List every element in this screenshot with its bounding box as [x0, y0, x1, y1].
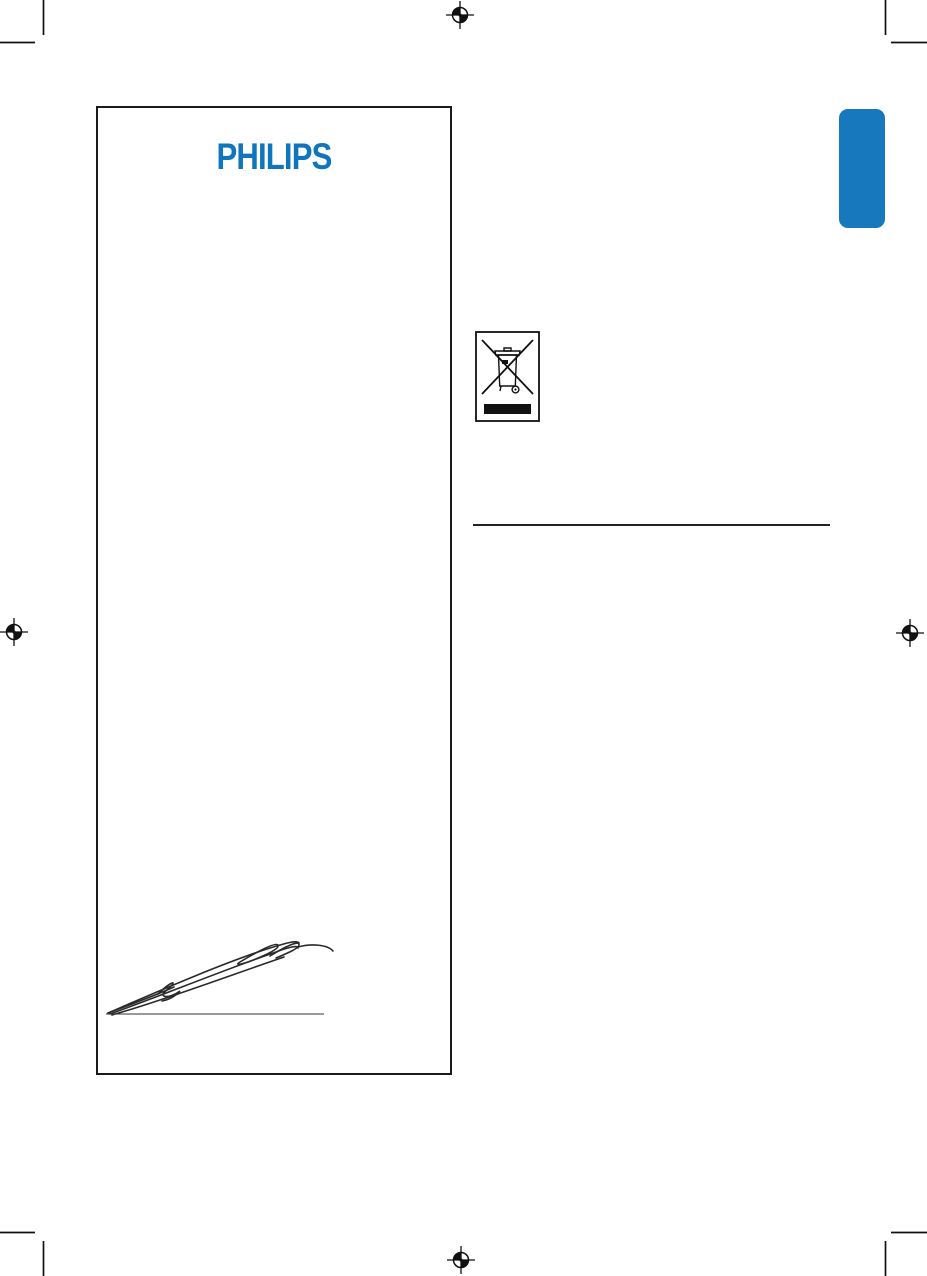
- manual-page: PHILIPS: [0, 0, 927, 1276]
- declaration-box: PHILIPS: [96, 106, 452, 1075]
- section-tab-shape: [839, 109, 885, 228]
- philips-logo: PHILIPS: [126, 138, 422, 175]
- registration-mark-icon: [443, 0, 477, 32]
- weee-recycle-bin-icon: [475, 331, 540, 422]
- registration-mark-icon: [444, 1243, 478, 1276]
- section-divider: [473, 524, 830, 526]
- registration-mark-icon: [0, 615, 31, 649]
- section-tab: [839, 109, 885, 228]
- signature: [102, 920, 342, 1020]
- registration-mark-icon: [893, 616, 927, 650]
